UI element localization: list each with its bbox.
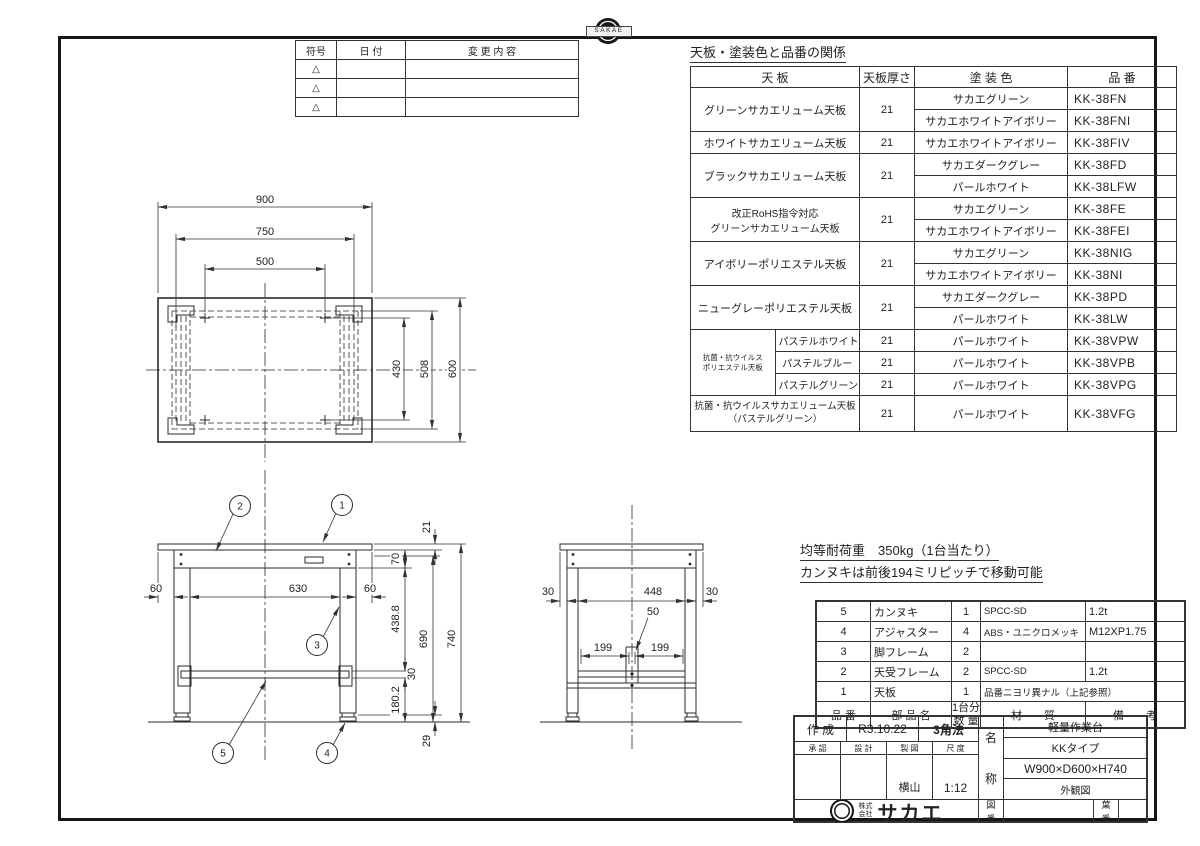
product-name: 軽量作業台	[1004, 717, 1147, 738]
created-date: R3.10.22	[847, 717, 919, 742]
paint-tenban: ニューグレーポリエステル天板	[691, 286, 860, 330]
revision-table: 符号 日 付 変 更 内 容 △ △ △	[295, 40, 579, 117]
paint-code: KK-38PD	[1068, 286, 1177, 308]
scale-label: 尺 度	[933, 742, 979, 755]
paint-row: ブラックサカエリューム天板 21 サカエダークグレー KK-38FD	[691, 154, 1177, 176]
paint-color: パールホワイト	[915, 374, 1068, 396]
paint-code: KK-38FNI	[1068, 110, 1177, 132]
paint-tenban-sub: パステルホワイト	[775, 330, 860, 352]
scale-value: 1:12	[933, 755, 979, 800]
parts-table: 5 カンヌキ 1 SPCC-SD 1.2t 4 アジャスター 4 ABS・ユニク…	[815, 600, 1186, 729]
paint-code: KK-38VFG	[1068, 396, 1177, 432]
drawing-no-label: 図番	[979, 800, 1004, 822]
paint-color: サカエホワイトアイボリー	[915, 132, 1068, 154]
paint-thickness: 21	[860, 352, 915, 374]
parts-row: 1 天板 1 品番ニヨリ異ナル（上記参照）	[816, 682, 1185, 702]
paint-tenban: ブラックサカエリューム天板	[691, 154, 860, 198]
paint-thickness: 21	[860, 154, 915, 198]
paint-table: 天 板 天板厚さ 塗 装 色 品 番 グリーンサカエリューム天板 21 サカエグ…	[690, 66, 1177, 432]
part-qty: 2	[952, 642, 981, 662]
paint-thickness: 21	[860, 396, 915, 432]
dim-side-bar-width: 50	[645, 606, 661, 618]
paint-table-title: 天板・塗装色と品番の関係	[690, 42, 846, 63]
dim-side-overhang-left: 30	[540, 586, 556, 598]
part-qty: 1	[952, 601, 981, 622]
callout-1: 1	[332, 495, 353, 516]
paint-thickness: 21	[860, 198, 915, 242]
paint-color: パールホワイト	[915, 352, 1068, 374]
part-no: 4	[816, 622, 871, 642]
paint-code: KK-38FE	[1068, 198, 1177, 220]
svg-text:1: 1	[339, 501, 345, 512]
paint-tenban: ホワイトサカエリューム天板	[691, 132, 860, 154]
dim-front-adjuster-height: 29	[421, 733, 433, 749]
paint-thickness: 21	[860, 374, 915, 396]
paint-code: KK-38FN	[1068, 88, 1177, 110]
paint-color: パールホワイト	[915, 308, 1068, 330]
paint-tenban-group: 抗菌・抗ウイルスポリエステル天板	[691, 330, 776, 396]
svg-text:3: 3	[314, 641, 320, 652]
draft-label: 製 図	[887, 742, 933, 755]
parts-row: 5 カンヌキ 1 SPCC-SD 1.2t	[816, 601, 1185, 622]
paint-header-thickness: 天板厚さ	[860, 67, 915, 88]
part-material: ABS・ユニクロメッキ	[981, 622, 1086, 642]
dim-front-top-thickness: 21	[421, 519, 433, 535]
part-material: 品番ニヨリ異ナル（上記参照）	[981, 682, 1186, 702]
part-name: 脚フレーム	[871, 642, 952, 662]
part-name: アジャスター	[871, 622, 952, 642]
dim-front-lower-height: 180.2	[390, 684, 402, 716]
paint-tenban: グリーンサカエリューム天板	[691, 88, 860, 132]
product-type: KKタイプ	[1004, 738, 1147, 759]
paint-color: サカエグリーン	[915, 198, 1068, 220]
created-label: 作 成	[795, 717, 847, 742]
paint-thickness: 21	[860, 286, 915, 330]
paint-code: KK-38LFW	[1068, 176, 1177, 198]
part-note: M12XP1.75	[1086, 622, 1186, 642]
paint-color: パールホワイト	[915, 330, 1068, 352]
paint-code: KK-38NI	[1068, 264, 1177, 286]
paint-tenban-sub: パステルブルー	[775, 352, 860, 374]
paint-thickness: 21	[860, 242, 915, 286]
paint-header-row: 天 板 天板厚さ 塗 装 色 品 番	[691, 67, 1177, 88]
parts-row: 4 アジャスター 4 ABS・ユニクロメッキ M12XP1.75	[816, 622, 1185, 642]
front-view: 2 1 3 5 4	[144, 470, 470, 764]
paint-header-tenban: 天 板	[691, 67, 860, 88]
paint-code: KK-38VPW	[1068, 330, 1177, 352]
dim-front-overhang-left: 60	[148, 583, 164, 595]
title-block: 作 成 R3.10.22 3角法 承 認 設 計 製 図 尺 度 横山 1:12…	[793, 715, 1148, 823]
dim-front-inner-width: 630	[287, 583, 309, 595]
svg-text:2: 2	[237, 502, 243, 513]
paint-header-code: 品 番	[1068, 67, 1177, 88]
dim-plan-frame-width: 750	[254, 226, 276, 238]
part-no: 5	[816, 601, 871, 622]
svg-text:5: 5	[220, 749, 226, 760]
revision-row: △	[296, 60, 579, 79]
product-size: W900×D600×H740	[1004, 759, 1147, 779]
parts-row: 3 脚フレーム 2	[816, 642, 1185, 662]
paint-code: KK-38FD	[1068, 154, 1177, 176]
revision-row: △	[296, 98, 579, 117]
dim-side-overhang-right: 30	[704, 586, 720, 598]
paint-thickness: 21	[860, 88, 915, 132]
dim-front-bar-height: 30	[406, 666, 418, 682]
svg-text:4: 4	[324, 749, 330, 760]
revision-header-row: 符号 日 付 変 更 内 容	[296, 41, 579, 60]
revision-symbol: △	[296, 79, 337, 98]
part-no: 3	[816, 642, 871, 662]
paint-tenban: 改正RoHS指令対応グリーンサカエリューム天板	[691, 198, 860, 242]
view-type: 外観図	[1004, 779, 1147, 800]
paint-code: KK-38NIG	[1068, 242, 1177, 264]
dim-front-apron-height: 70	[390, 551, 402, 567]
revision-symbol: △	[296, 60, 337, 79]
revision-header-symbol: 符号	[296, 41, 337, 60]
company-logo-cell: 株式 会社 サカエ	[795, 800, 979, 822]
paint-tenban: アイボリーポリエステル天板	[691, 242, 860, 286]
name-label: 名称	[979, 717, 1004, 800]
part-material: SPCC-SD	[981, 601, 1086, 622]
paint-row: アイボリーポリエステル天板 21 サカエグリーン KK-38NIG	[691, 242, 1177, 264]
part-note: 1.2t	[1086, 601, 1186, 622]
dim-plan-pitch-width: 500	[254, 256, 276, 268]
paint-color: サカエダークグレー	[915, 286, 1068, 308]
paint-thickness: 21	[860, 132, 915, 154]
paint-code: KK-38LW	[1068, 308, 1177, 330]
revision-header-date: 日 付	[337, 41, 406, 60]
part-name: 天板	[871, 682, 952, 702]
part-name: カンヌキ	[871, 601, 952, 622]
load-capacity-note: 均等耐荷重 350kg（1台当たり）	[800, 540, 999, 561]
dim-front-under-top-height: 690	[418, 628, 430, 650]
part-qty: 4	[952, 622, 981, 642]
callout-3: 3	[307, 635, 328, 656]
parts-row: 2 天受フレーム 2 SPCC-SD 1.2t	[816, 662, 1185, 682]
paint-code: KK-38VPG	[1068, 374, 1177, 396]
part-no: 2	[816, 662, 871, 682]
paint-color: パールホワイト	[915, 176, 1068, 198]
part-qty: 2	[952, 662, 981, 682]
paint-header-color: 塗 装 色	[915, 67, 1068, 88]
paint-tenban-sub: パステルグリーン	[775, 374, 860, 396]
callout-5: 5	[213, 743, 234, 764]
sakae-logo-icon	[830, 800, 854, 822]
design-label: 設 計	[841, 742, 887, 755]
paint-row: グリーンサカエリューム天板 21 サカエグリーン KK-38FN	[691, 88, 1177, 110]
kannuki-pitch-note: カンヌキは前後194ミリピッチで移動可能	[800, 562, 1043, 583]
paint-row: 改正RoHS指令対応グリーンサカエリューム天板 21 サカエグリーン KK-38…	[691, 198, 1177, 220]
sheet-no-value	[1119, 800, 1147, 822]
projection-method: 3角法	[919, 717, 979, 742]
paint-code: KK-38FEI	[1068, 220, 1177, 242]
dim-side-pitch-left: 199	[592, 642, 614, 654]
drafter-name: 横山	[887, 755, 933, 800]
paint-thickness: 21	[860, 330, 915, 352]
sakae-badge-text: SAKAE	[586, 26, 632, 37]
paint-color: サカエダークグレー	[915, 154, 1068, 176]
paint-code: KK-38FIV	[1068, 132, 1177, 154]
part-no: 1	[816, 682, 871, 702]
paint-row: ホワイトサカエリューム天板 21 サカエホワイトアイボリー KK-38FIV	[691, 132, 1177, 154]
side-view	[540, 505, 742, 752]
dim-side-pitch-right: 199	[649, 642, 671, 654]
dim-front-leg-span: 438.8	[390, 603, 402, 635]
paint-color: サカエグリーン	[915, 242, 1068, 264]
dim-plan-frame-depth: 508	[419, 358, 431, 380]
revision-header-desc: 変 更 内 容	[406, 41, 579, 60]
paint-color: サカエホワイトアイボリー	[915, 110, 1068, 132]
dim-plan-overall-depth: 600	[447, 358, 459, 380]
paint-color: サカエグリーン	[915, 88, 1068, 110]
paint-code: KK-38VPB	[1068, 352, 1177, 374]
dim-front-overhang-right: 60	[362, 583, 378, 595]
dim-side-inner-depth: 448	[642, 586, 664, 598]
plan-view	[146, 202, 476, 462]
paint-color: サカエホワイトアイボリー	[915, 264, 1068, 286]
revision-symbol: △	[296, 98, 337, 117]
callout-2: 2	[230, 496, 251, 517]
dim-front-overall-height: 740	[446, 628, 458, 650]
part-material: SPCC-SD	[981, 662, 1086, 682]
paint-row: 抗菌・抗ウイルスサカエリューム天板（パステルグリーン） 21 パールホワイト K…	[691, 396, 1177, 432]
part-name: 天受フレーム	[871, 662, 952, 682]
dim-plan-overall-width: 900	[254, 194, 276, 206]
callout-4: 4	[317, 743, 338, 764]
paint-row: 抗菌・抗ウイルスポリエステル天板 パステルホワイト 21 パールホワイト KK-…	[691, 330, 1177, 352]
approval-label: 承 認	[795, 742, 841, 755]
revision-row: △	[296, 79, 579, 98]
company-name: サカエ	[878, 800, 944, 822]
part-note: 1.2t	[1086, 662, 1186, 682]
paint-tenban: 抗菌・抗ウイルスサカエリューム天板（パステルグリーン）	[691, 396, 860, 432]
paint-row: ニューグレーポリエステル天板 21 サカエダークグレー KK-38PD	[691, 286, 1177, 308]
sheet-no-label: 葉番	[1094, 800, 1119, 822]
part-qty: 1	[952, 682, 981, 702]
drawing-no-value	[1004, 800, 1094, 822]
company-prefix: 株式 会社	[859, 803, 873, 818]
paint-color: サカエホワイトアイボリー	[915, 220, 1068, 242]
dim-plan-inner-depth: 430	[391, 358, 403, 380]
paint-color: パールホワイト	[915, 396, 1068, 432]
